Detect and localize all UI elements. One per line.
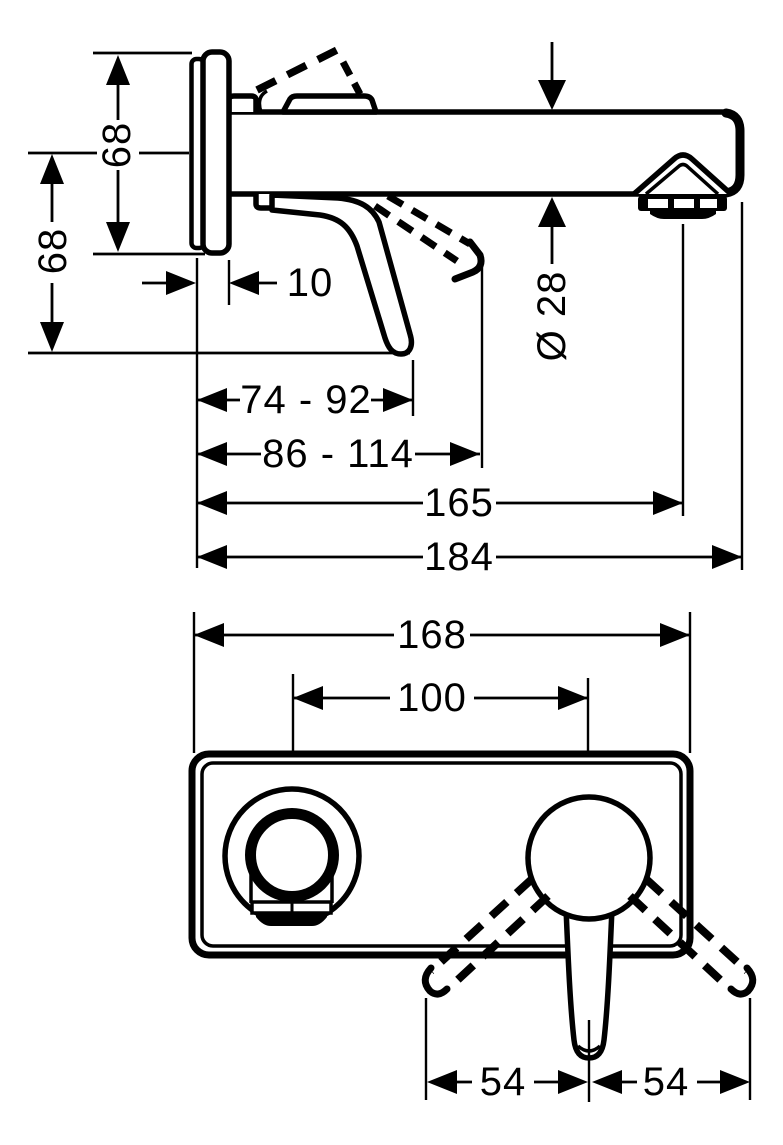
dimension-handle-reach: 86 - 114 [197,432,480,476]
dimension-total-projection: 184 [197,535,742,579]
lever-raised-dashed [257,50,360,94]
dimension-10-label: 10 [287,261,334,305]
dimension-74-92-label: 74 - 92 [240,378,372,422]
faucet-technical-drawing: 68 68 10 74 - 92 [0,0,783,1145]
side-view: 68 68 10 74 - 92 [28,42,742,579]
dimension-plate-width: 168 [194,613,690,657]
lever-pivot-arc [259,91,267,112]
dimension-168-label: 168 [397,613,467,657]
left-knob [225,789,359,926]
dimension-plate-depth: 10 [142,261,333,305]
front-view: 168 100 54 54 [192,612,753,1104]
dimension-hole-spacing: 100 [293,676,588,720]
escutcheon-plate-side [203,52,229,253]
dimension-d28-label: Ø 28 [530,271,574,362]
dimension-86-114-label: 86 - 114 [262,432,414,476]
dimension-184-label: 184 [424,535,494,579]
dimensional-drawing-page: 68 68 10 74 - 92 [0,0,783,1145]
lever-rest-position [283,96,376,112]
dimension-165-label: 165 [424,481,494,525]
dimension-100-label: 100 [397,676,467,720]
dimension-68-upper-label: 68 [95,122,139,169]
handle-base-top [229,96,256,112]
dimension-68-lower-label: 68 [31,228,75,275]
dimension-spout-diameter: Ø 28 [530,42,574,361]
dimension-54-right-label: 54 [643,1060,690,1104]
dimension-spout-reach: 74 - 92 [197,378,413,422]
dimension-aerator-distance: 165 [197,481,683,525]
dimension-54-left-label: 54 [480,1060,527,1104]
